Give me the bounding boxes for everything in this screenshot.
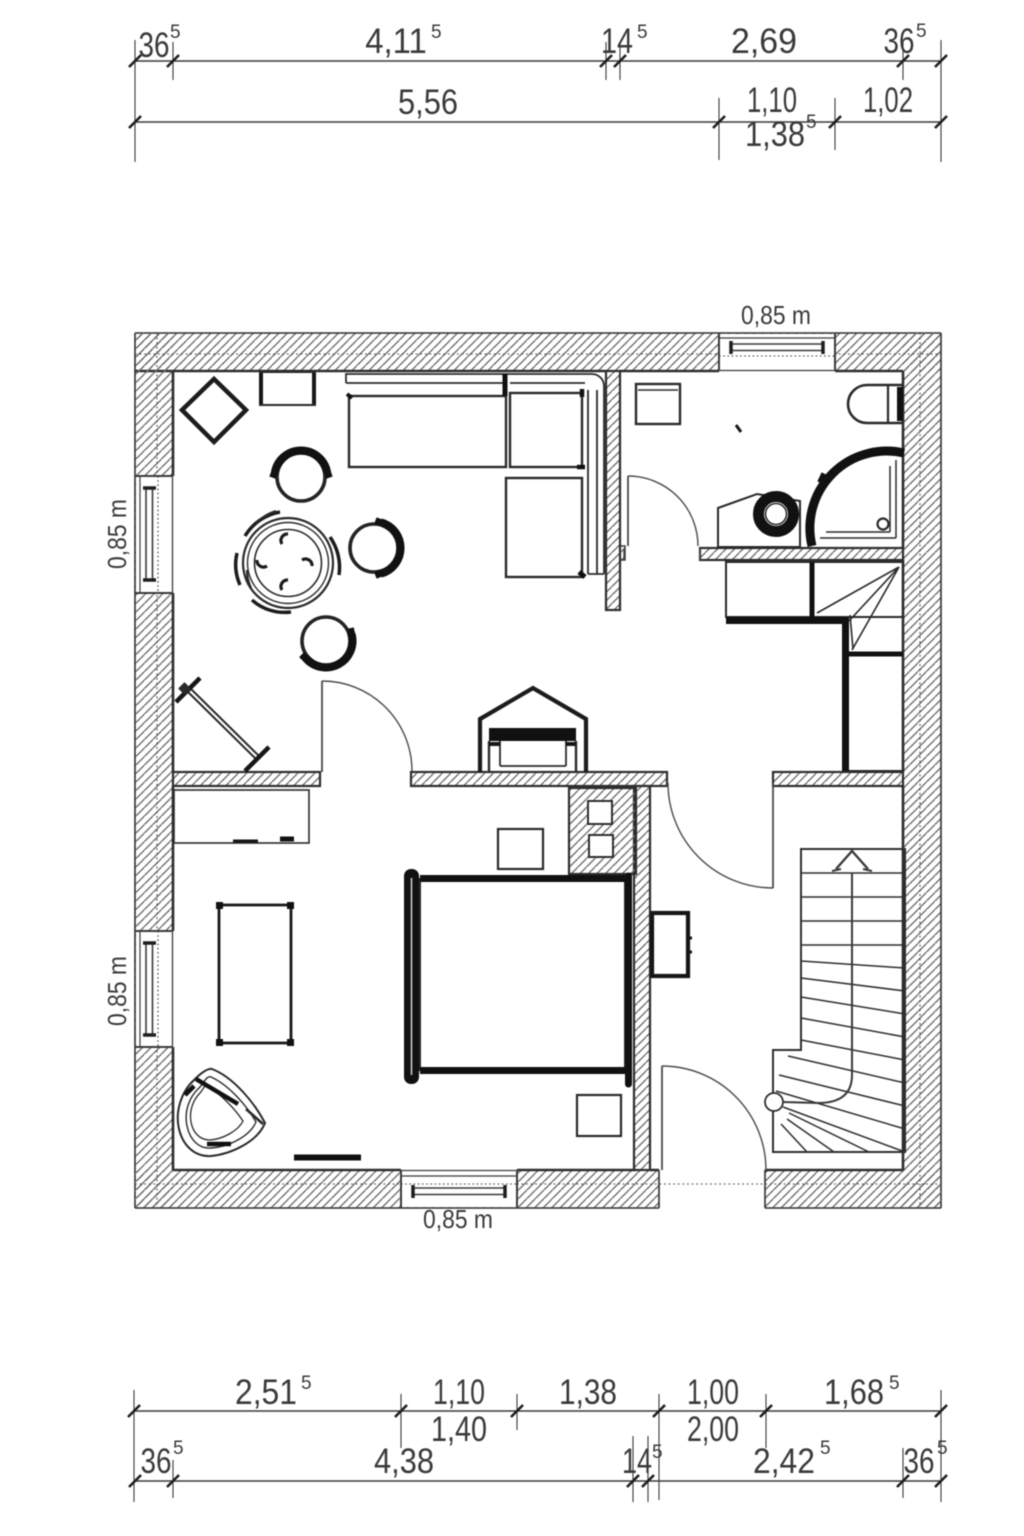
- svg-text:5: 5: [431, 22, 442, 43]
- svg-text:1,00: 1,00: [687, 1373, 739, 1412]
- svg-text:1,40: 1,40: [431, 1409, 487, 1448]
- svg-text:5,56: 5,56: [398, 82, 458, 121]
- svg-text:36: 36: [883, 21, 914, 61]
- svg-text:5: 5: [916, 21, 927, 42]
- svg-text:2,69: 2,69: [731, 23, 797, 62]
- svg-text:5: 5: [937, 1438, 948, 1459]
- svg-text:5: 5: [170, 22, 181, 43]
- svg-text:5: 5: [889, 1373, 900, 1394]
- svg-text:0,85 m: 0,85 m: [741, 302, 811, 331]
- svg-text:5: 5: [652, 1442, 663, 1463]
- svg-text:4,11: 4,11: [365, 22, 427, 61]
- svg-text:36: 36: [903, 1441, 934, 1481]
- svg-text:2,51: 2,51: [235, 1374, 297, 1413]
- svg-text:2,42: 2,42: [753, 1443, 815, 1482]
- svg-text:14: 14: [622, 1442, 652, 1481]
- svg-text:0,85 m: 0,85 m: [104, 956, 133, 1026]
- svg-text:0,85 m: 0,85 m: [423, 1206, 493, 1235]
- svg-text:14: 14: [601, 21, 633, 60]
- svg-text:5: 5: [820, 1438, 831, 1459]
- svg-text:5: 5: [173, 1438, 184, 1459]
- svg-text:4,38: 4,38: [374, 1441, 434, 1480]
- svg-text:1,02: 1,02: [863, 80, 913, 120]
- svg-text:1,10: 1,10: [433, 1373, 485, 1412]
- svg-text:36: 36: [138, 25, 169, 65]
- svg-text:1,68: 1,68: [824, 1372, 884, 1411]
- svg-text:1,38: 1,38: [559, 1373, 617, 1412]
- svg-text:5: 5: [301, 1373, 312, 1394]
- svg-text:2,00: 2,00: [687, 1410, 739, 1449]
- svg-text:36: 36: [140, 1441, 171, 1481]
- svg-text:5: 5: [637, 22, 648, 43]
- svg-text:5: 5: [806, 112, 817, 133]
- svg-text:0,85 m: 0,85 m: [104, 499, 133, 569]
- svg-text:1,38: 1,38: [745, 114, 805, 153]
